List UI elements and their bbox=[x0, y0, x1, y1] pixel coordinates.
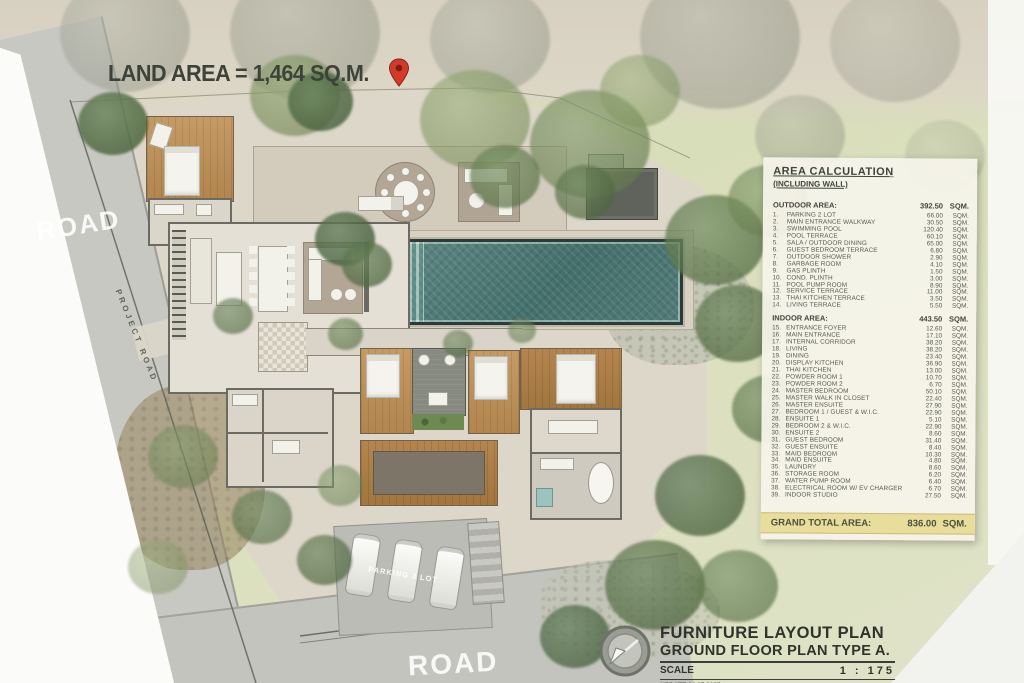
guest-bath-wc bbox=[196, 204, 212, 216]
dining-chairs-right bbox=[287, 246, 295, 310]
plan-title-line2: GROUND FLOOR PLAN TYPE A. bbox=[660, 643, 895, 659]
road-label-bottom: ROAD bbox=[407, 646, 499, 683]
pouf-1 bbox=[330, 288, 343, 301]
master-vanity bbox=[540, 458, 574, 470]
section-unit: SQM. bbox=[943, 202, 969, 211]
master-bathtub bbox=[588, 462, 614, 504]
title-rule-bottom bbox=[660, 679, 895, 681]
tree-canopy bbox=[128, 540, 188, 594]
section-unit: SQM. bbox=[942, 315, 968, 324]
louvre-screen bbox=[172, 230, 186, 340]
tree-canopy bbox=[600, 55, 680, 127]
north-compass-icon bbox=[598, 624, 652, 678]
section-total: 443.50 bbox=[908, 315, 942, 324]
section-header: OUTDOOR AREA:392.50SQM. bbox=[773, 200, 969, 210]
tree-canopy bbox=[443, 330, 473, 357]
panel-title: AREA CALCULATION bbox=[773, 165, 969, 178]
thai-kitchen-counter bbox=[190, 238, 212, 304]
tree-canopy bbox=[655, 455, 745, 536]
maid-bed bbox=[272, 440, 300, 454]
tree-canopy bbox=[698, 550, 778, 622]
service-wall-1 bbox=[262, 390, 264, 482]
section-header: INDOOR AREA:443.50SQM. bbox=[772, 314, 968, 324]
location-pin-icon bbox=[388, 58, 410, 88]
section-label: INDOOR AREA: bbox=[772, 314, 908, 324]
site-plan-canvas: ROAD ROAD PROJECT ROAD PARKING 3 LOT LAN… bbox=[0, 0, 1024, 683]
plan-title-line1: FURNITURE LAYOUT PLAN bbox=[660, 624, 895, 643]
row-unit: SQM. bbox=[941, 494, 967, 501]
tree-canopy bbox=[555, 165, 615, 219]
dining-chair bbox=[386, 173, 395, 182]
row-number: 14. bbox=[772, 303, 786, 310]
scale-value: 1 : 175 bbox=[840, 665, 895, 677]
swimming-pool bbox=[399, 239, 683, 325]
tree-canopy bbox=[297, 535, 352, 585]
area-table-row: 39.INDOOR STUDIO27.50SQM. bbox=[771, 493, 967, 501]
area-calculation-panel: AREA CALCULATION (INCLUDING WALL) OUTDOO… bbox=[761, 157, 978, 540]
courtyard-planting bbox=[412, 414, 464, 430]
tree-canopy bbox=[328, 318, 363, 350]
scale-row: SCALE 1 : 175 bbox=[660, 665, 895, 677]
tree-canopy bbox=[508, 318, 536, 343]
scale-label: SCALE bbox=[660, 665, 840, 677]
row-value: 27.50 bbox=[911, 494, 941, 501]
area-table-row: 14.LIVING TERRACE5.50SQM. bbox=[772, 303, 968, 311]
title-block-text: FURNITURE LAYOUT PLAN GROUND FLOOR PLAN … bbox=[660, 624, 895, 683]
tree-canopy bbox=[470, 145, 540, 208]
dining-table bbox=[258, 246, 288, 312]
dining-chair bbox=[416, 203, 425, 212]
grand-total-unit: SQM. bbox=[942, 519, 966, 530]
master-bed bbox=[556, 354, 596, 404]
tree-canopy bbox=[318, 465, 363, 506]
guest-suite-bed bbox=[164, 146, 200, 196]
grand-total-value: 836.00 bbox=[907, 518, 936, 529]
laundry-counter bbox=[232, 394, 258, 406]
bbq-counter bbox=[358, 196, 404, 211]
ensuite-wc bbox=[428, 392, 448, 406]
outdoor-shower-plunge bbox=[536, 488, 553, 507]
tree-canopy bbox=[342, 242, 392, 287]
grand-total-label: GRAND TOTAL AREA: bbox=[771, 517, 908, 529]
service-wall-2 bbox=[228, 432, 328, 434]
dining-chairs-left bbox=[249, 246, 257, 310]
row-value: 5.50 bbox=[912, 304, 942, 311]
outdoor-dining-pad bbox=[375, 162, 435, 222]
ensuite-basin-1 bbox=[418, 354, 430, 366]
dining-chair bbox=[416, 173, 425, 182]
tree-canopy bbox=[213, 298, 253, 334]
bedroom-1-bed bbox=[366, 354, 400, 398]
tree-canopy bbox=[605, 540, 705, 630]
grand-total-row: GRAND TOTAL AREA: 836.00 SQM. bbox=[761, 512, 975, 534]
row-name: INDOOR STUDIO bbox=[785, 493, 911, 501]
title-rule-top bbox=[660, 661, 895, 663]
tree-canopy bbox=[78, 92, 148, 155]
driveway-ramp bbox=[467, 521, 505, 605]
guest-bath-vanity bbox=[154, 204, 184, 215]
indoor-studio bbox=[360, 440, 498, 506]
entrance-foyer-tiles bbox=[258, 322, 308, 372]
section-total: 392.50 bbox=[909, 201, 943, 210]
row-number: 39. bbox=[771, 493, 785, 500]
closet-island bbox=[548, 420, 598, 434]
pouf-2 bbox=[344, 288, 357, 301]
row-unit: SQM. bbox=[942, 304, 968, 311]
area-table-body: OUTDOOR AREA:392.50SQM.1.PARKING 2 LOT66… bbox=[771, 196, 969, 501]
land-area-text: LAND AREA = 1,464 SQ.M. bbox=[108, 60, 369, 87]
dining-chair bbox=[422, 188, 431, 197]
panel-subtitle: (INCLUDING WALL) bbox=[773, 179, 969, 189]
living-sofa-side bbox=[308, 259, 322, 301]
row-name: LIVING TERRACE bbox=[786, 303, 912, 311]
dining-chair bbox=[401, 167, 410, 176]
bedroom-2-bed bbox=[474, 356, 508, 400]
studio-roof bbox=[373, 451, 485, 495]
land-area-annotation: LAND AREA = 1,464 SQ.M. bbox=[108, 58, 410, 88]
title-block: FURNITURE LAYOUT PLAN GROUND FLOOR PLAN … bbox=[598, 624, 895, 683]
tree-canopy bbox=[232, 490, 292, 544]
tree-canopy bbox=[148, 425, 218, 488]
section-label: OUTDOOR AREA: bbox=[773, 200, 909, 210]
